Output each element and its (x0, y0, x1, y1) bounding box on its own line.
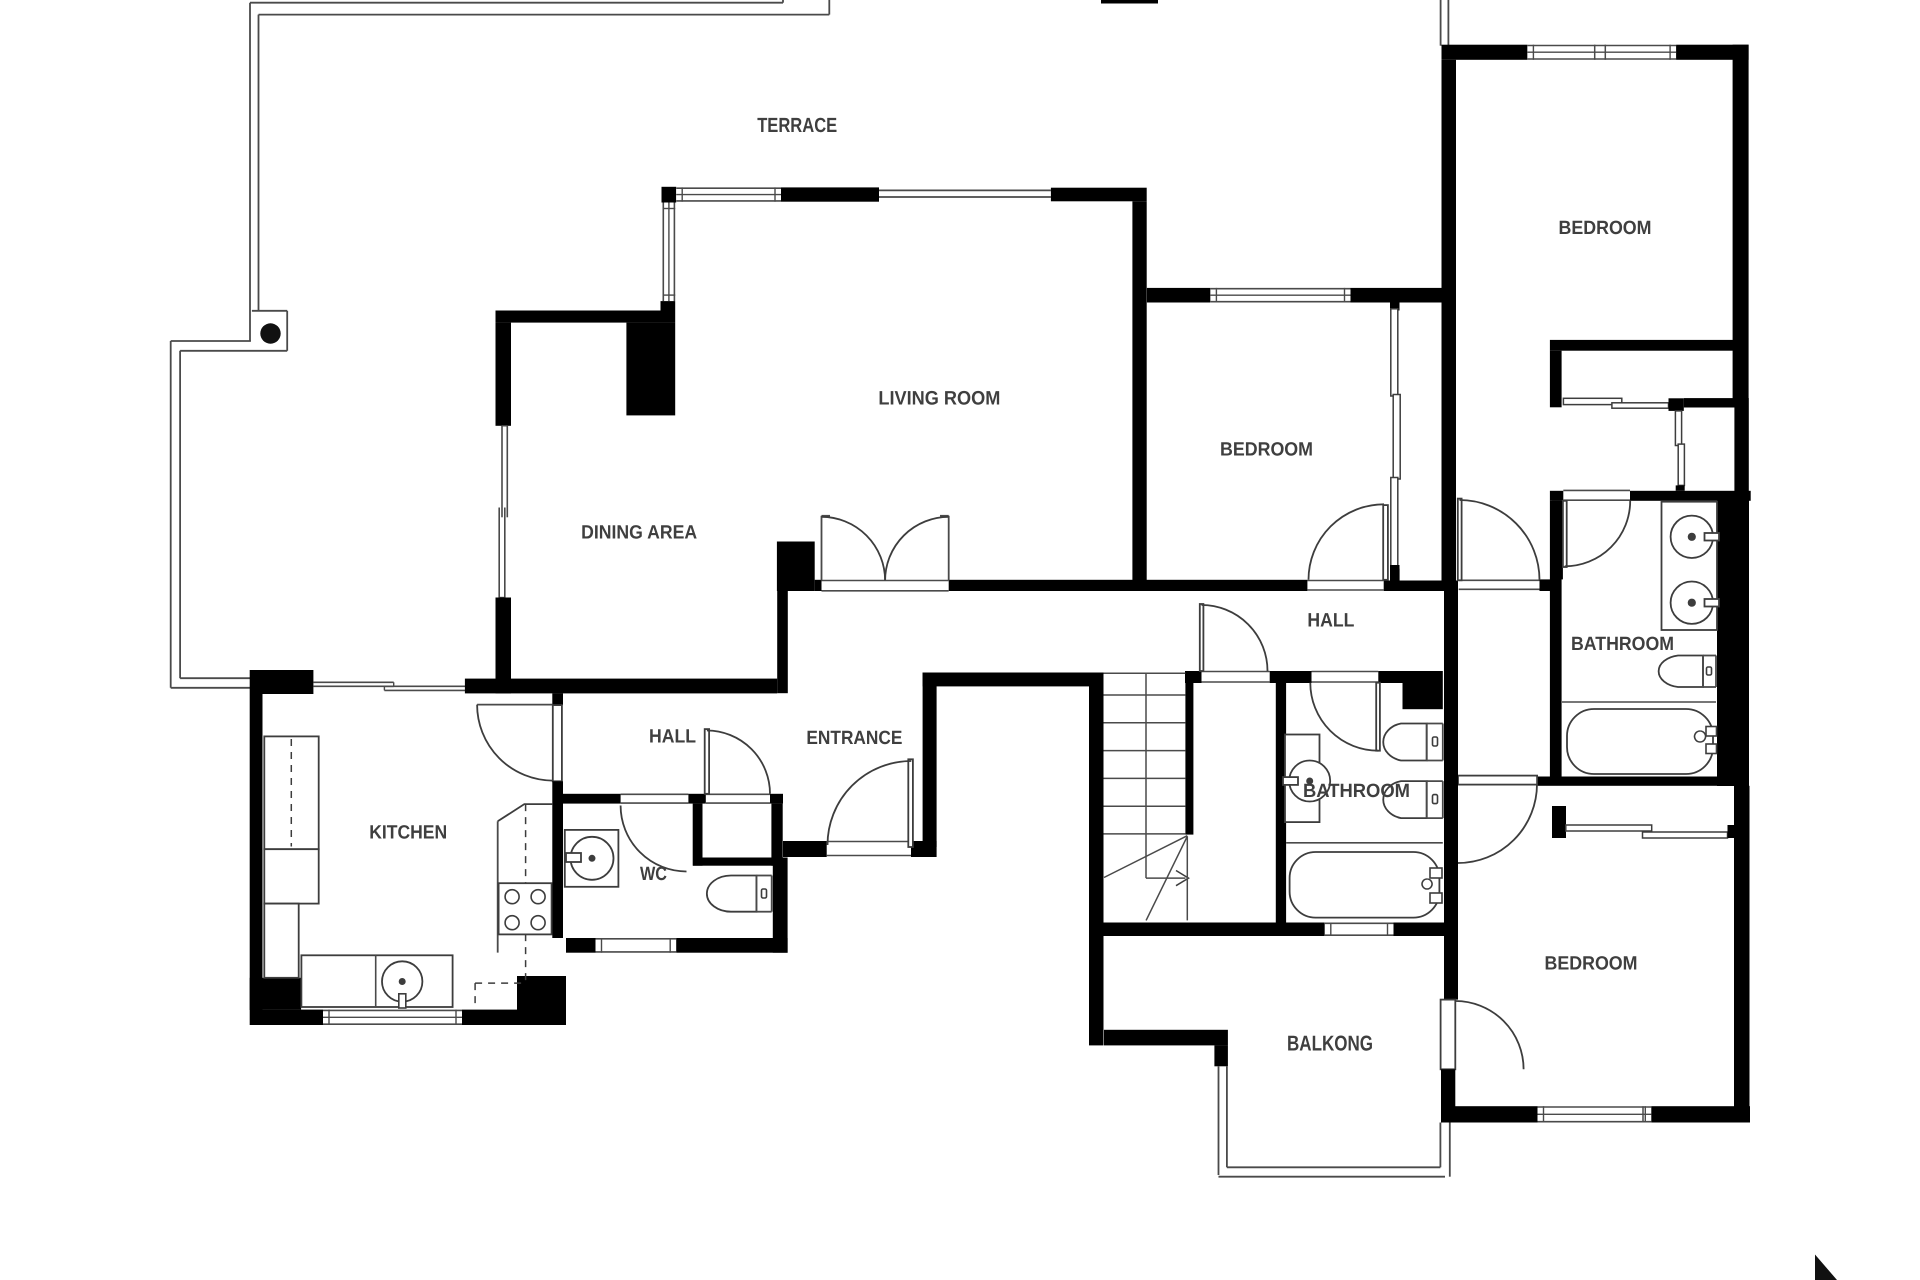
svg-text:WC: WC (640, 864, 667, 885)
svg-text:LIVING ROOM: LIVING ROOM (878, 388, 1000, 410)
svg-text:HALL: HALL (649, 727, 696, 748)
svg-text:ENTRANCE: ENTRANCE (806, 728, 902, 749)
svg-text:BALKONG: BALKONG (1287, 1032, 1373, 1056)
svg-text:BEDROOM: BEDROOM (1220, 439, 1313, 460)
svg-text:BEDROOM: BEDROOM (1545, 954, 1638, 975)
svg-text:KITCHEN: KITCHEN (369, 822, 447, 843)
svg-text:BATHROOM: BATHROOM (1303, 781, 1410, 802)
svg-text:TERRACE: TERRACE (757, 114, 837, 137)
svg-text:HALL: HALL (1307, 609, 1354, 631)
svg-text:BEDROOM: BEDROOM (1559, 218, 1652, 239)
svg-text:BATHROOM: BATHROOM (1571, 634, 1674, 655)
svg-text:DINING AREA: DINING AREA (581, 523, 697, 544)
